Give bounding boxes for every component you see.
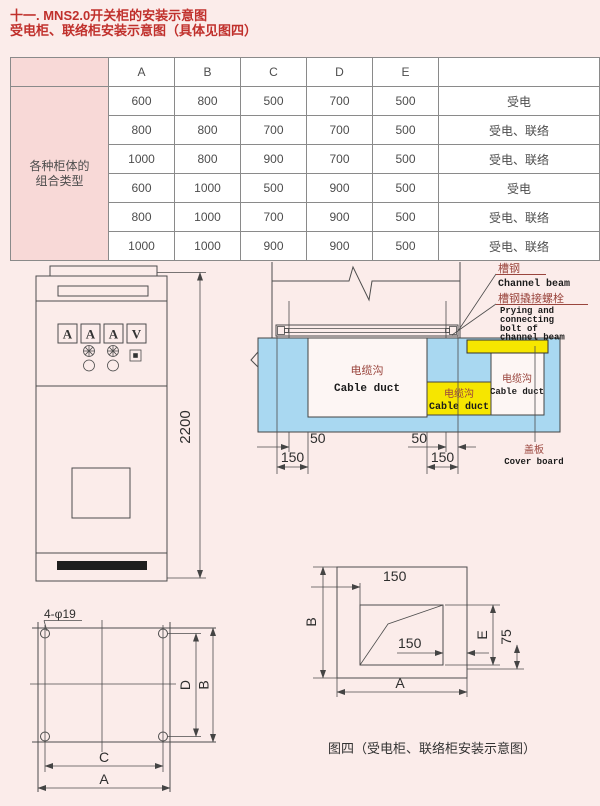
channel-beam-label-en: Channel beam — [498, 278, 570, 290]
beam-bolt — [450, 327, 457, 335]
dim-b: B — [303, 617, 319, 626]
dim-150: 150 — [281, 449, 305, 465]
dim-150: 150 — [398, 635, 422, 651]
dim-75: 75 — [498, 629, 514, 645]
beam-bolt-label-en: channel beam — [500, 333, 565, 343]
meter-row: A A A V — [58, 324, 146, 343]
dim-50: 50 — [310, 430, 326, 446]
cabinet-top-slot — [58, 286, 148, 296]
button-icon — [84, 360, 95, 371]
ventilation-grille — [57, 561, 147, 570]
hole-callout: 4-φ19 — [44, 607, 76, 621]
installation-diagrams: A A A V — [0, 0, 600, 806]
cover-board-label-en: Cover board — [504, 457, 563, 467]
dim-150: 150 — [431, 449, 455, 465]
catalog-page: 十一. MNS2.0开关柜的安装示意图 受电柜、联络柜安装示意图（具体见图四） … — [0, 0, 600, 806]
meter-label: A — [109, 327, 119, 342]
duct-label-cn: 电缆沟 — [351, 364, 384, 377]
cable-duct-section: 电缆沟 Cable duct 电缆沟 Cable duct 电缆沟 Cable … — [251, 262, 588, 474]
figure4-view: 150 B 150 E 75 A 图四（受电柜、联络柜安装示意 — [303, 567, 536, 756]
duct-label-en: Cable duct — [490, 387, 544, 397]
beam-bolt-label-cn: 槽钢撬接螺栓 — [498, 291, 564, 305]
base-plate-view: 4-φ19 D B C A — [30, 607, 216, 792]
cabinet-height-dim: 2200 — [177, 410, 194, 443]
duct-label-cn: 电缆沟 — [502, 372, 532, 385]
channel-beam-label-cn: 槽钢 — [498, 262, 520, 275]
meter-label: A — [86, 327, 96, 342]
cable-duct-left — [308, 338, 427, 417]
dim-c: C — [99, 749, 109, 765]
meter-label: V — [132, 327, 142, 342]
cabinet-window — [72, 468, 130, 518]
indicator-lamps — [84, 346, 142, 372]
duct-label-cn: 电缆沟 — [444, 387, 474, 400]
figure4-caption: 图四（受电柜、联络柜安装示意图） — [328, 741, 536, 756]
beam-bolt — [278, 327, 285, 335]
meter-label: A — [63, 327, 73, 342]
channel-beam — [276, 325, 458, 336]
cabinet-front-view: A A A V — [36, 266, 206, 581]
button-icon — [108, 360, 119, 371]
cover-board-label-cn: 盖板 — [524, 443, 544, 456]
duct-label-en: Cable duct — [429, 401, 489, 413]
dim-a: A — [395, 675, 405, 691]
dim-e: E — [474, 630, 490, 639]
dim-50: 50 — [411, 430, 427, 446]
dim-d: D — [177, 680, 193, 690]
dim-150: 150 — [383, 568, 407, 584]
break-symbol — [251, 352, 258, 367]
duct-label-en: Cable duct — [334, 383, 400, 395]
dim-a: A — [99, 771, 109, 787]
dim-b: B — [196, 680, 212, 689]
